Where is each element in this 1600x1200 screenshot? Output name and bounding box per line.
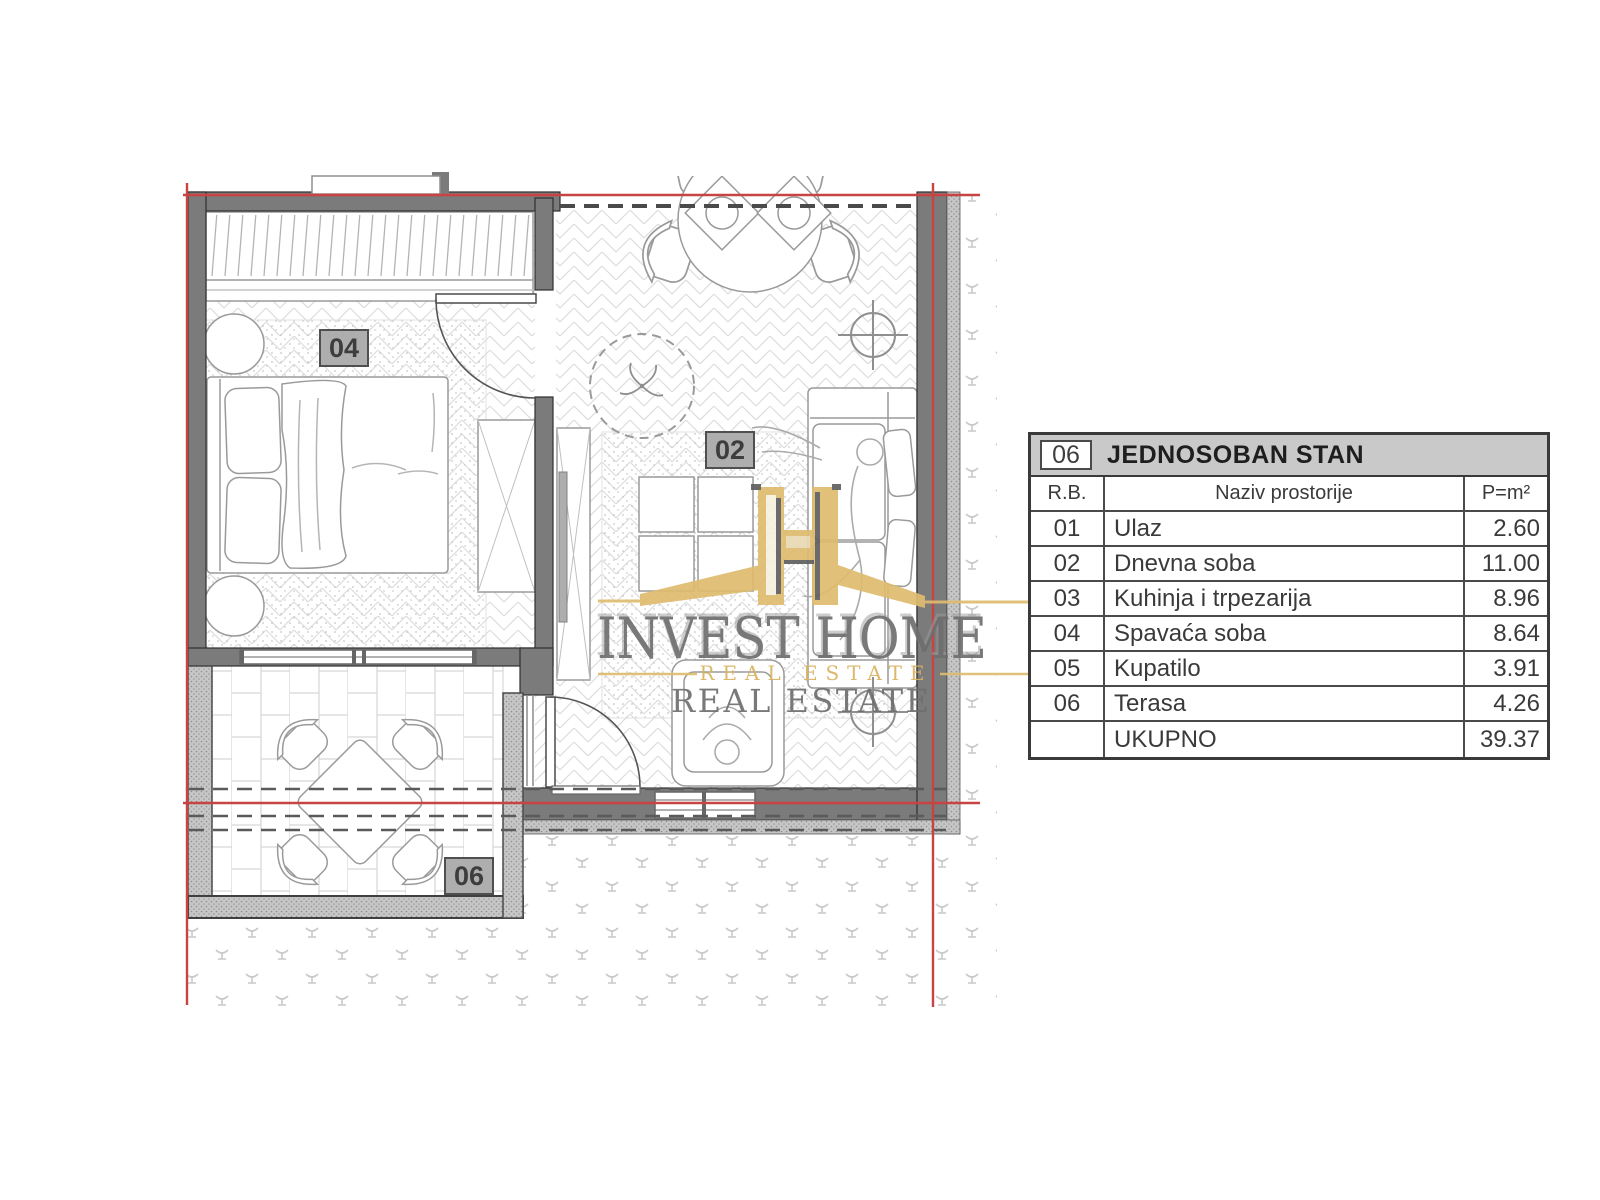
- row-name: Ulaz: [1105, 512, 1465, 545]
- tv-unit: [557, 428, 590, 680]
- row-area: 3.91: [1465, 652, 1547, 685]
- bedroom-furniture: [196, 212, 535, 636]
- wall-stub-top: [535, 198, 553, 290]
- row-name: Kupatilo: [1105, 652, 1465, 685]
- wall-left: [188, 192, 206, 666]
- room-label-text: 02: [715, 435, 745, 465]
- col-header-area: P=m²: [1465, 477, 1547, 510]
- table-title: JEDNOSOBAN STAN: [1107, 441, 1364, 470]
- table-header: 06 JEDNOSOBAN STAN: [1031, 435, 1547, 477]
- shaft-box: [312, 176, 440, 194]
- room-areas-table: 06 JEDNOSOBAN STAN R.B. Naziv prostorije…: [1028, 432, 1550, 760]
- row-name: Dnevna soba: [1105, 547, 1465, 580]
- total-area: 39.37: [1465, 722, 1547, 757]
- row-index: 02: [1031, 547, 1105, 580]
- bedroom-window: [240, 650, 476, 664]
- row-area: 4.26: [1465, 687, 1547, 720]
- insulation-right: [947, 192, 960, 834]
- terrace-glass-panel: [527, 695, 533, 786]
- row-index: 01: [1031, 512, 1105, 545]
- row-index: 06: [1031, 687, 1105, 720]
- blanket: [282, 380, 346, 568]
- row-name: Terasa: [1105, 687, 1465, 720]
- row-area: 11.00: [1465, 547, 1547, 580]
- parapet-left: [188, 666, 212, 918]
- table-row: 01 Ulaz 2.60: [1031, 512, 1547, 547]
- wardrobe: [206, 212, 533, 301]
- parapet-bottom: [188, 896, 523, 918]
- total-label: UKUPNO: [1105, 722, 1465, 757]
- wall-corner-block: [520, 648, 553, 695]
- room-label-terrace: 06: [445, 858, 493, 894]
- parapet-right: [503, 693, 523, 918]
- row-area: 8.96: [1465, 582, 1547, 615]
- table-row: 06 Terasa 4.26: [1031, 687, 1547, 722]
- row-index: 03: [1031, 582, 1105, 615]
- wall-partition: [535, 397, 553, 666]
- pillow: [225, 387, 282, 474]
- room-label-text: 06: [454, 861, 484, 891]
- row-index: 04: [1031, 617, 1105, 650]
- living-window: [655, 792, 755, 818]
- room-label-living: 02: [706, 432, 754, 468]
- row-name: Spavaća soba: [1105, 617, 1465, 650]
- row-name: Kuhinja i trpezarija: [1105, 582, 1465, 615]
- insulation-bottom: [505, 820, 960, 834]
- row-area: 8.64: [1465, 617, 1547, 650]
- room-label-text: 04: [329, 333, 359, 363]
- table-row: 02 Dnevna soba 11.00: [1031, 547, 1547, 582]
- table-total-row: UKUPNO 39.37: [1031, 722, 1547, 757]
- total-index: [1031, 722, 1105, 757]
- tagline-gray: REAL ESTATE: [671, 682, 929, 720]
- bedroom-cabinet: [478, 420, 535, 592]
- pillow: [225, 477, 282, 564]
- table-row: 03 Kuhinja i trpezarija 8.96: [1031, 582, 1547, 617]
- col-header-index: R.B.: [1031, 477, 1105, 510]
- row-index: 05: [1031, 652, 1105, 685]
- column-header-row: R.B. Naziv prostorije P=m²: [1031, 477, 1547, 512]
- table-row: 04 Spavaća soba 8.64: [1031, 617, 1547, 652]
- room-label-bedroom: 04: [320, 330, 368, 366]
- unit-number-badge: 06: [1040, 440, 1092, 470]
- bed: [207, 377, 448, 573]
- table-row: 05 Kupatilo 3.91: [1031, 652, 1547, 687]
- col-header-name: Naziv prostorije: [1105, 477, 1465, 510]
- row-area: 2.60: [1465, 512, 1547, 545]
